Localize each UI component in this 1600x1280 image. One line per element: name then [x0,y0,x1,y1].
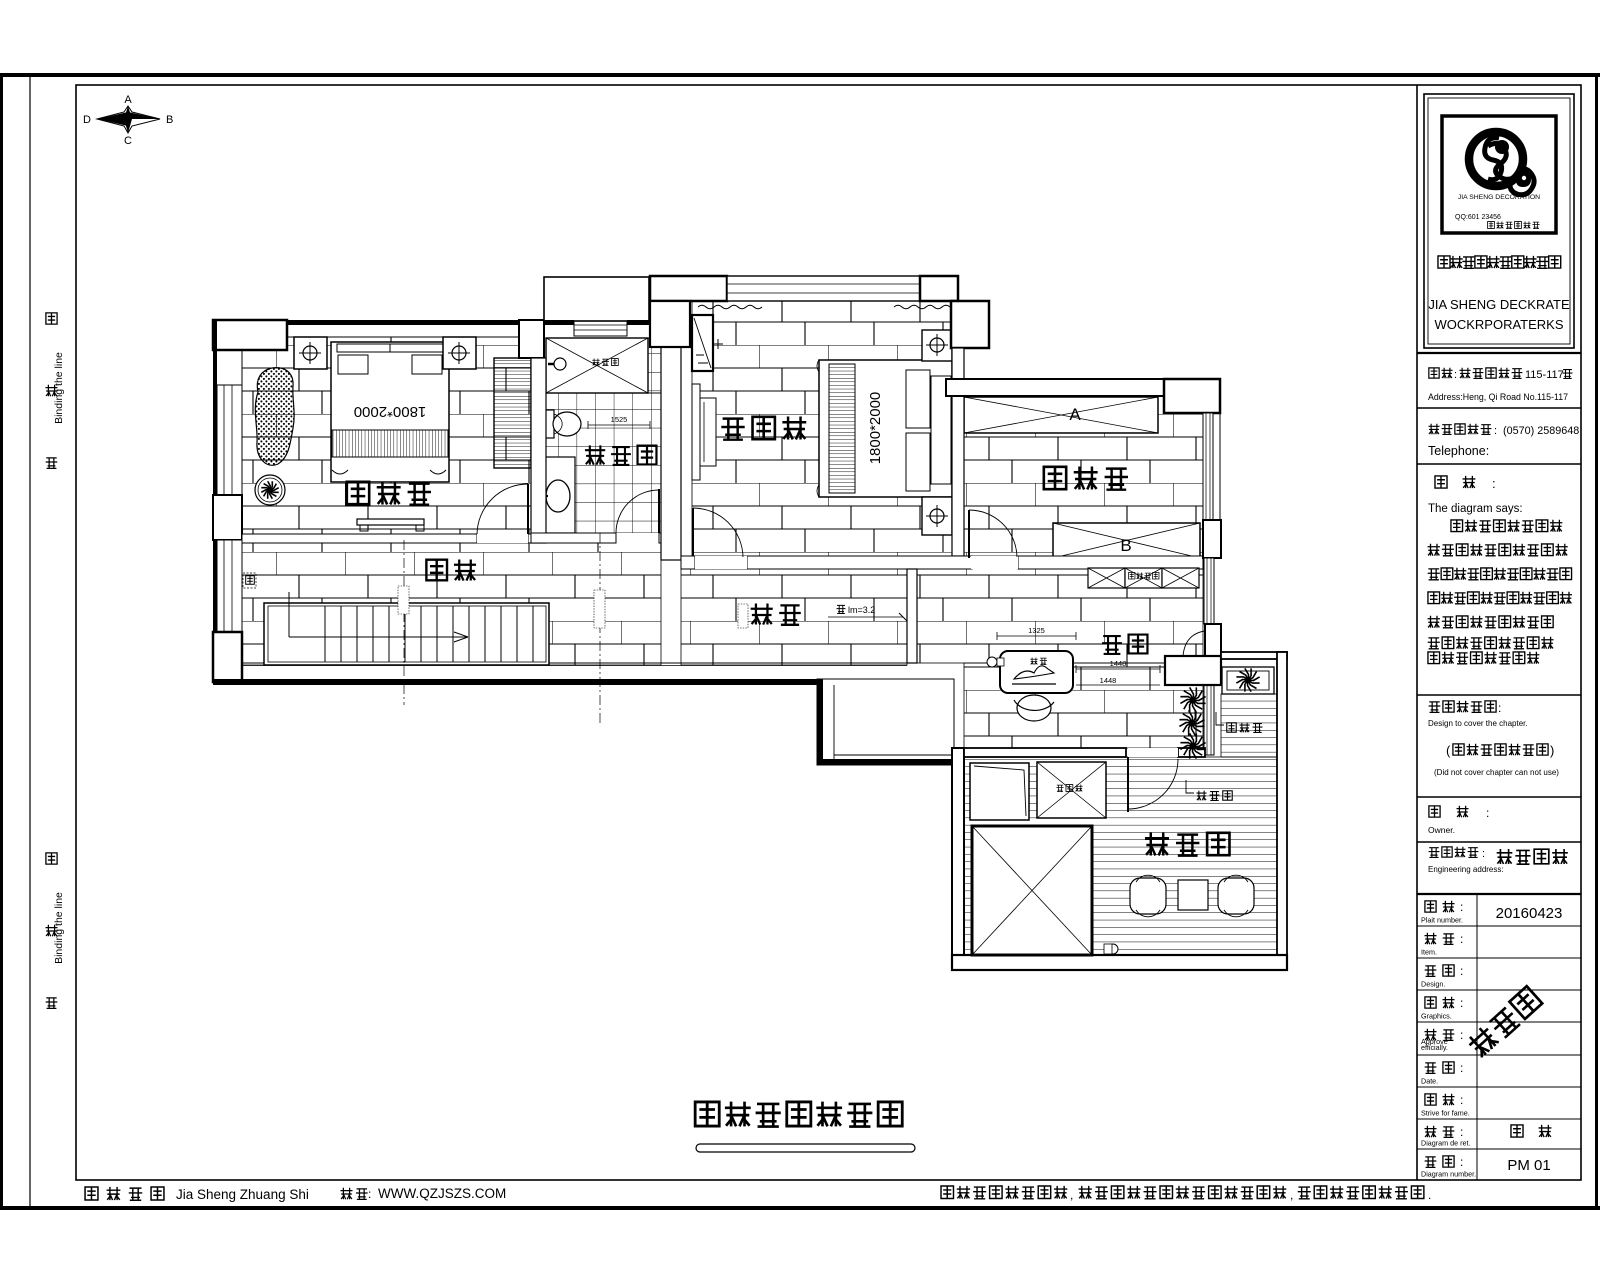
svg-text:(: ( [1446,743,1451,758]
svg-text:): ) [1550,743,1554,758]
svg-text:(Did not cover chapter can not: (Did not cover chapter can not use) [1434,768,1559,777]
svg-text::: : [1460,964,1463,978]
svg-text:Item.: Item. [1421,948,1437,957]
svg-text:1800*2000: 1800*2000 [867,392,884,465]
svg-text:,: , [1290,1188,1293,1202]
svg-text:Engineering address:: Engineering address: [1428,865,1504,874]
svg-text:Binding the line: Binding the line [53,892,65,964]
svg-text:WWW.QZJSZS.COM: WWW.QZJSZS.COM [378,1186,506,1201]
svg-text:Strive for fame.: Strive for fame. [1421,1109,1470,1118]
svg-text::: : [1486,806,1489,820]
svg-text:Owner.: Owner. [1428,825,1455,835]
svg-text:lm=3.2: lm=3.2 [848,605,875,615]
svg-text:.: . [1428,1188,1431,1202]
svg-text:WOCKRPORATERKS: WOCKRPORATERKS [1434,317,1563,332]
svg-text:1448: 1448 [1100,676,1117,685]
svg-text:Telephone:: Telephone: [1428,444,1489,458]
svg-text::: : [1460,932,1463,946]
svg-text::: : [1454,369,1457,381]
svg-text:,: , [1070,1188,1073,1202]
svg-text::: : [1482,848,1485,860]
svg-text:1325: 1325 [1028,626,1045,635]
svg-text:PM 01: PM 01 [1507,1157,1550,1174]
svg-text:A: A [124,94,132,106]
svg-text:A: A [1069,405,1081,424]
svg-text:Date.: Date. [1421,1077,1438,1086]
svg-text:Design to cover the chapter.: Design to cover the chapter. [1428,719,1528,728]
svg-text::: : [1460,1125,1463,1139]
svg-text:D: D [83,114,91,126]
svg-text:1448: 1448 [1110,659,1127,668]
svg-text:C: C [124,135,132,147]
svg-text:JIA SHENG DECKRATE: JIA SHENG DECKRATE [1428,297,1570,312]
svg-text::: : [1460,1093,1463,1107]
svg-text:Jia Sheng Zhuang Shi: Jia Sheng Zhuang Shi [176,1187,309,1202]
svg-text:B: B [1120,536,1131,555]
svg-text:Design.: Design. [1421,980,1445,989]
svg-text:20160423: 20160423 [1496,905,1563,922]
svg-text::: : [1460,1061,1463,1075]
svg-text:The diagram says:: The diagram says: [1428,503,1523,515]
svg-text:Address:Heng, Qi Road No.115-1: Address:Heng, Qi Road No.115-117 [1428,392,1568,402]
svg-text::: : [1460,900,1463,914]
svg-text:Diagram de ret.: Diagram de ret. [1421,1139,1471,1148]
svg-text:115-117: 115-117 [1525,369,1564,381]
svg-text:1525: 1525 [611,415,628,424]
svg-text::: : [1460,1155,1463,1169]
svg-text:B: B [166,114,173,126]
svg-text:Diagram number.: Diagram number. [1421,1170,1476,1179]
svg-text:QQ:601 23456: QQ:601 23456 [1455,214,1501,221]
svg-text:Graphics.: Graphics. [1421,1012,1452,1021]
svg-text::: : [1498,701,1501,715]
svg-text::: : [1460,1028,1463,1042]
svg-text:JIA SHENG DECORATION: JIA SHENG DECORATION [1458,194,1540,201]
svg-text::: : [1492,476,1496,491]
svg-text:1800*2000: 1800*2000 [354,403,427,420]
svg-text:(0570) 2589648: (0570) 2589648 [1503,425,1579,437]
svg-text:Binding the line: Binding the line [53,352,65,424]
svg-text::: : [1460,996,1463,1010]
svg-text::: : [368,1187,371,1201]
svg-text:Plait number.: Plait number. [1421,916,1463,925]
svg-text::: : [1494,425,1497,437]
svg-text:efficially.: efficially. [1421,1043,1448,1052]
